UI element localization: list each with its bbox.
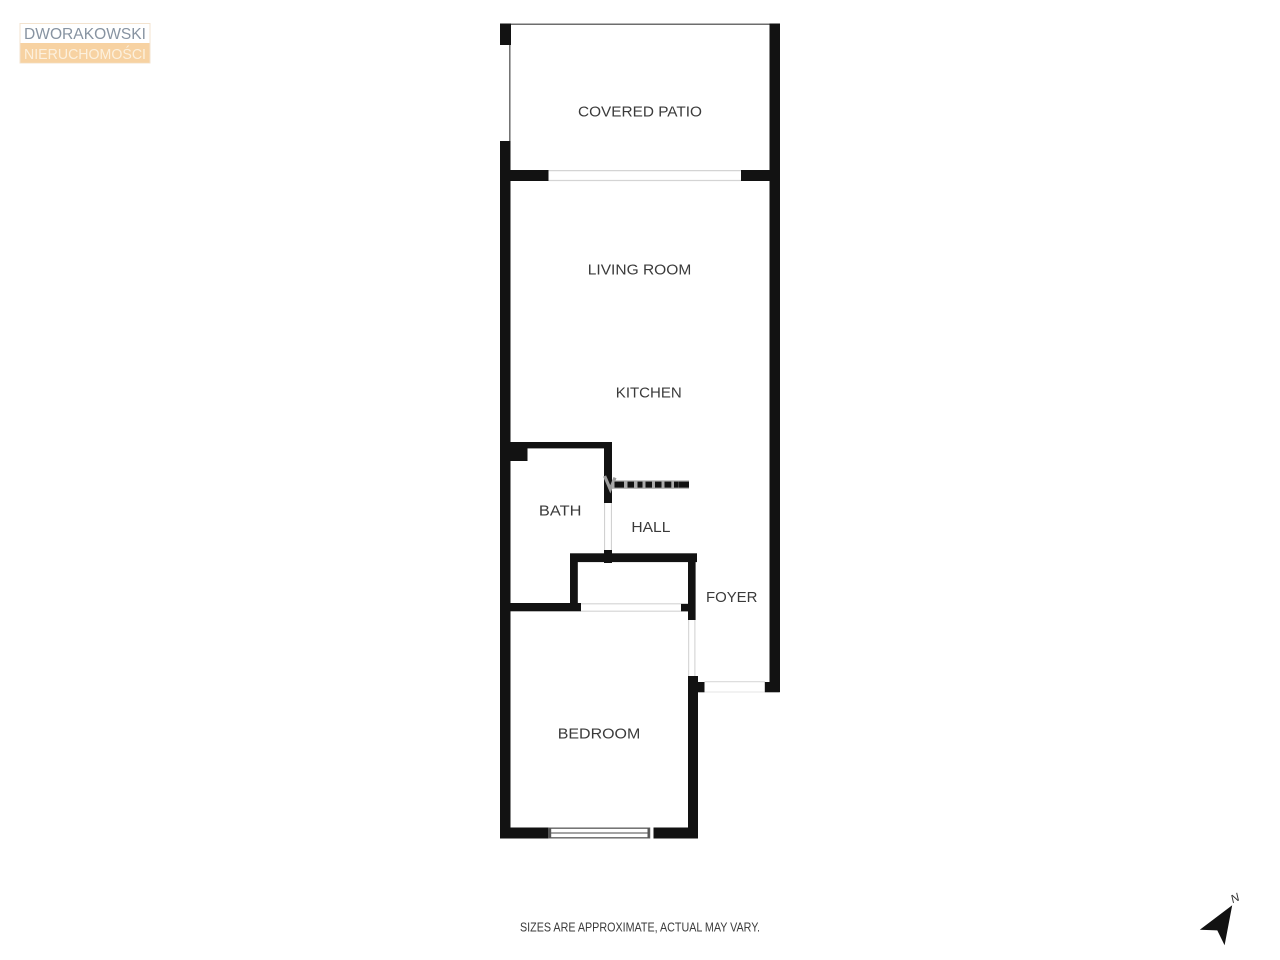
svg-text:COVERED PATIO: COVERED PATIO (578, 103, 702, 120)
svg-text:FOYER: FOYER (706, 589, 758, 606)
svg-text:BATH: BATH (539, 503, 582, 520)
svg-text:NIERUCHOMOŚCI: NIERUCHOMOŚCI (24, 45, 146, 63)
svg-text:BEDROOM: BEDROOM (558, 725, 641, 742)
svg-text:SIZES ARE APPROXIMATE, ACTUAL: SIZES ARE APPROXIMATE, ACTUAL MAY VARY. (520, 919, 760, 934)
svg-text:HALL: HALL (631, 519, 670, 536)
svg-text:KITCHEN: KITCHEN (616, 385, 682, 402)
svg-text:DWORAKOWSKI: DWORAKOWSKI (24, 26, 146, 43)
svg-text:LIVING ROOM: LIVING ROOM (588, 261, 692, 278)
